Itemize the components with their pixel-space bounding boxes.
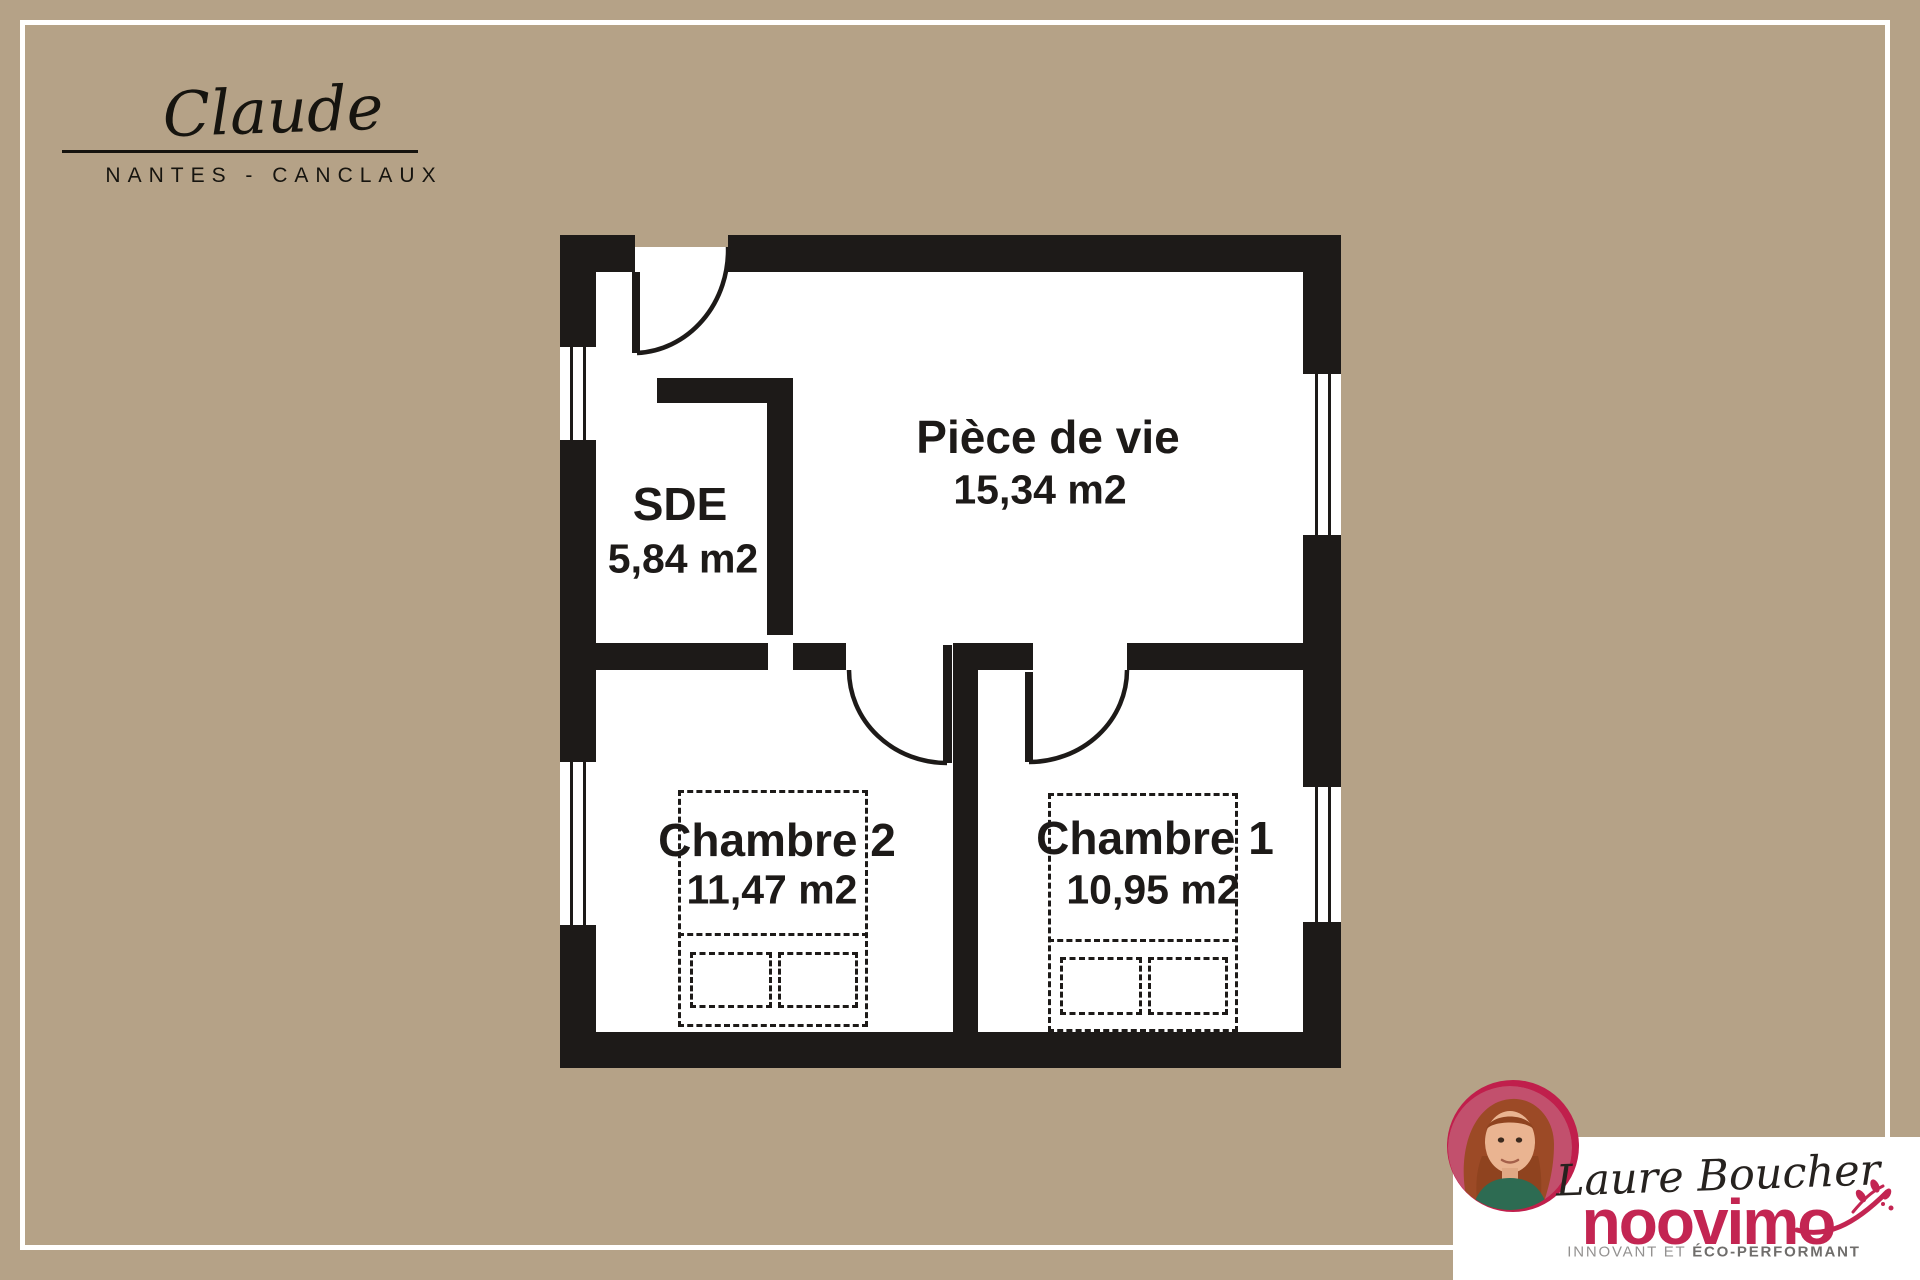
pillow-icon	[778, 952, 858, 1008]
program-location: NANTES - CANCLAUX	[105, 164, 442, 188]
room-name-living: Pièce de vie	[916, 410, 1179, 464]
entrance-door-arc-icon	[637, 247, 728, 353]
pillow-icon	[1148, 957, 1228, 1015]
bedroom2-door-arc-icon	[849, 670, 947, 763]
agent-portrait-icon	[1448, 1086, 1572, 1210]
room-area-sde: 5,84 m2	[608, 536, 758, 583]
room-area-living: 15,34 m2	[953, 467, 1126, 514]
room-name-bedroom1: Chambre 1	[1036, 811, 1274, 865]
program-name-script: Claude	[162, 71, 385, 152]
room-area-bedroom2: 11,47 m2	[687, 867, 858, 914]
pillow-icon	[690, 952, 772, 1008]
room-area-bedroom1: 10,95 m2	[1066, 867, 1239, 914]
room-name-sde: SDE	[633, 477, 728, 531]
room-name-bedroom2: Chambre 2	[658, 813, 896, 867]
pillow-icon	[1060, 957, 1142, 1015]
branding-divider-line	[62, 150, 418, 153]
leaf-sprig-icon	[1795, 1178, 1895, 1250]
floor-plan: Pièce de vie 15,34 m2 SDE 5,84 m2 Chambr…	[560, 235, 1341, 1068]
floor-plan-page: Claude NANTES - CANCLAUX	[0, 0, 1920, 1280]
agency-tagline-part1: INNOVANT ET	[1567, 1244, 1692, 1261]
bed-bedroom1-headboard-line	[1048, 939, 1238, 942]
bedroom1-door-arc-icon	[1029, 670, 1127, 762]
agent-photo	[1448, 1086, 1572, 1210]
bed-bedroom2-headboard-line	[678, 933, 868, 936]
